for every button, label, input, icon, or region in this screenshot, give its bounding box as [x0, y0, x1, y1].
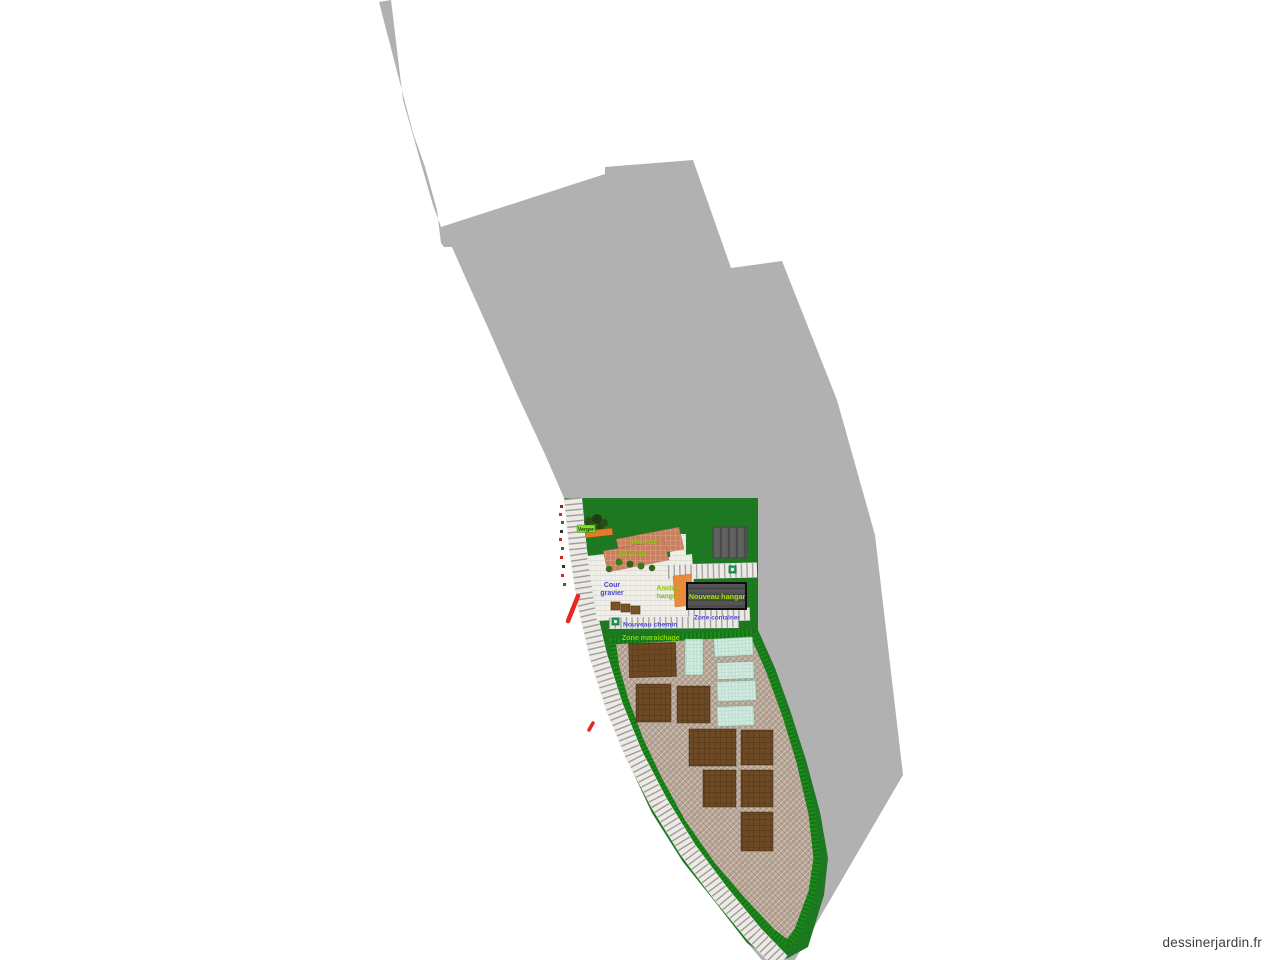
label-zone-container[interactable]: Zone container: [694, 615, 740, 622]
garden-plot[interactable]: [741, 730, 773, 765]
path-item[interactable]: [560, 505, 563, 508]
shrub[interactable]: [638, 563, 645, 570]
path-item[interactable]: [560, 556, 563, 559]
gate-icon[interactable]: [729, 566, 736, 573]
garden-plot[interactable]: [689, 729, 736, 766]
watermark: dessinerjardin.fr: [1163, 935, 1262, 950]
top-gravel-path[interactable]: [668, 570, 757, 572]
path-item[interactable]: [562, 565, 565, 568]
greenhouse-plot[interactable]: [714, 637, 754, 657]
path-item[interactable]: [559, 513, 562, 516]
greenhouse-plot[interactable]: [717, 705, 755, 726]
verger-tag[interactable]: Verger: [577, 525, 595, 533]
shrub[interactable]: [616, 559, 623, 566]
garden-plot[interactable]: [703, 770, 736, 807]
nouveau-chemin-marker[interactable]: [612, 618, 619, 625]
planter-box[interactable]: [611, 602, 620, 610]
greenhouse-plot[interactable]: [685, 639, 703, 675]
red-mark[interactable]: [568, 596, 578, 621]
path-item[interactable]: [563, 583, 566, 586]
greenhouse-plot[interactable]: [717, 680, 757, 701]
garden-plot[interactable]: [741, 812, 773, 851]
garden-plot[interactable]: [636, 684, 671, 722]
label-cour-gravier-line2[interactable]: gravier: [600, 590, 624, 597]
path-item[interactable]: [561, 574, 564, 577]
plan-svg[interactable]: Terrasse Terrasse Cour gravier Ancien ha…: [0, 0, 1280, 960]
garden-plot[interactable]: [629, 642, 677, 677]
label-ancien-hangar-line1[interactable]: Ancien: [657, 585, 680, 592]
label-nouveau-hangar[interactable]: Nouveau hangar: [689, 592, 746, 601]
garden-plan-canvas[interactable]: Terrasse Terrasse Cour gravier Ancien ha…: [0, 0, 1280, 960]
path-item[interactable]: [559, 538, 562, 541]
path-item[interactable]: [561, 521, 564, 524]
shrub[interactable]: [606, 566, 612, 572]
shrub[interactable]: [649, 565, 655, 571]
parcel-shape[interactable]: [379, 0, 903, 960]
label-terrasse-lower[interactable]: Terrasse: [619, 551, 646, 558]
planter-box[interactable]: [631, 606, 640, 614]
path-item[interactable]: [560, 530, 563, 533]
red-mark-small[interactable]: [589, 723, 593, 730]
path-item[interactable]: [561, 547, 564, 550]
garden-plot[interactable]: [741, 770, 773, 807]
shrub[interactable]: [627, 561, 634, 568]
planter-box[interactable]: [621, 604, 630, 612]
greenhouse-plot[interactable]: [717, 661, 755, 679]
label-ancien-hangar-line2[interactable]: hangar: [657, 593, 680, 600]
label-zone-maraichage[interactable]: Zone maraichage: [622, 635, 680, 642]
label-terrasse-upper[interactable]: Terrasse: [631, 539, 658, 546]
path-side-items[interactable]: [559, 505, 566, 586]
label-nouveau-chemin[interactable]: Nouveau chemin: [623, 622, 677, 629]
label-cour-gravier-line1[interactable]: Cour: [604, 582, 621, 589]
paneled-roof-structure[interactable]: [713, 527, 747, 558]
label-verger[interactable]: Verger: [578, 527, 594, 533]
garden-plot[interactable]: [677, 686, 710, 723]
